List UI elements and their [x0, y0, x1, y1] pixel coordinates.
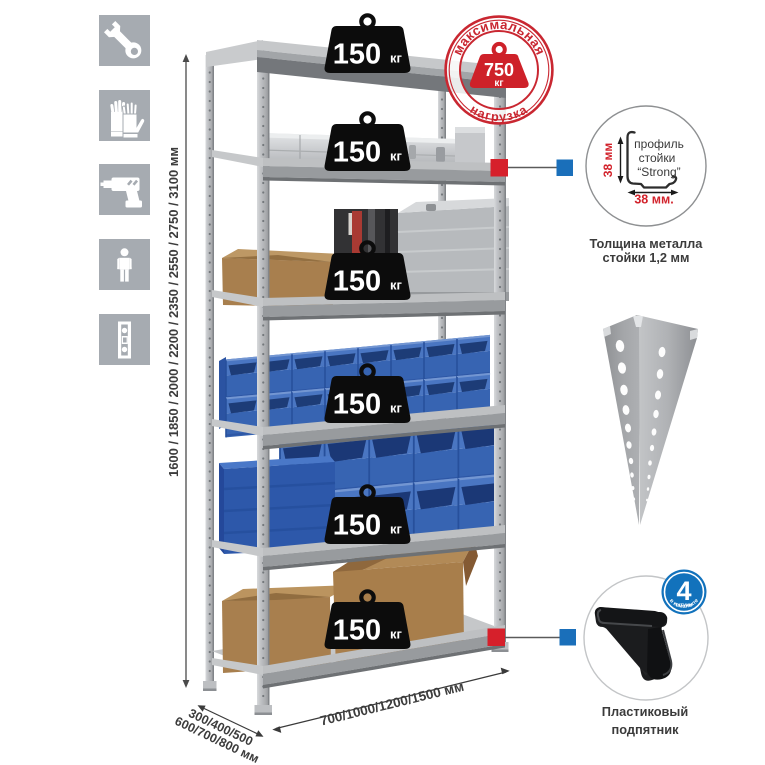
svg-text:кг: кг [390, 51, 403, 66]
svg-text:кг: кг [390, 401, 403, 416]
svg-text:кг: кг [494, 78, 503, 89]
svg-text:1600 / 1850 / 2000 / 2200 / 23: 1600 / 1850 / 2000 / 2200 / 2350 / 2550 … [166, 147, 181, 477]
svg-text:150: 150 [333, 266, 381, 298]
svg-text:Толщина металла: Толщина металла [590, 236, 704, 251]
svg-text:максимальная: максимальная [450, 17, 549, 58]
svg-text:38 мм.: 38 мм. [634, 193, 673, 207]
svg-text:150: 150 [333, 39, 381, 71]
svg-text:150: 150 [333, 510, 381, 542]
svg-text:150: 150 [333, 137, 381, 169]
svg-text:700/1000/1200/1500 мм: 700/1000/1200/1500 мм [318, 679, 465, 729]
svg-text:профиль: профиль [634, 137, 684, 151]
svg-text:стойки 1,2 мм: стойки 1,2 мм [602, 250, 689, 265]
svg-text:4: 4 [676, 576, 691, 606]
svg-text:Пластиковый: Пластиковый [602, 704, 688, 719]
svg-text:38 мм: 38 мм [601, 143, 615, 178]
svg-text:150: 150 [333, 615, 381, 647]
svg-text:стойки: стойки [639, 151, 676, 165]
svg-text:750: 750 [484, 60, 514, 80]
svg-text:“Strong”: “Strong” [637, 165, 680, 179]
svg-text:кг: кг [390, 149, 403, 164]
svg-text:подпятник: подпятник [612, 722, 680, 737]
svg-text:кг: кг [390, 278, 403, 293]
svg-text:кг: кг [390, 522, 403, 537]
svg-text:150: 150 [333, 389, 381, 421]
svg-text:кг: кг [390, 627, 403, 642]
